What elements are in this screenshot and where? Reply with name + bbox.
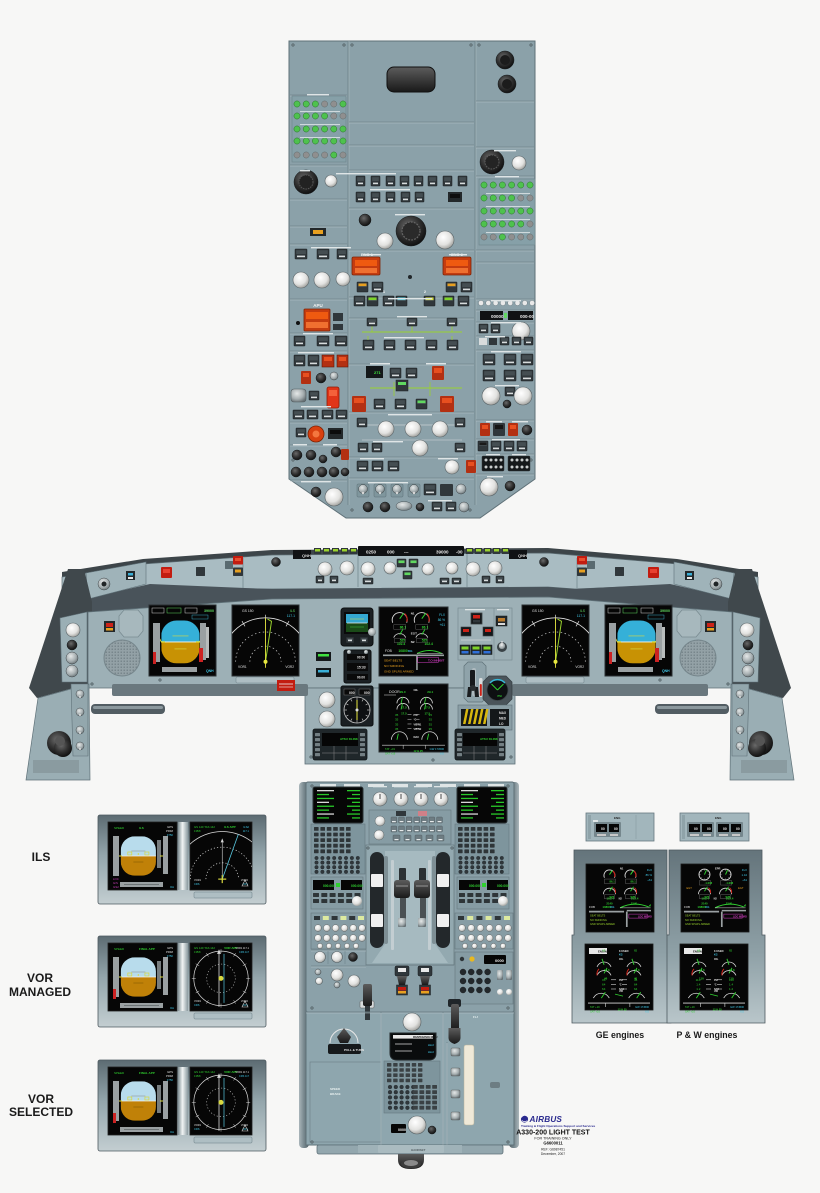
svg-text:GS 140 TAS 142: GS 140 TAS 142 <box>194 825 215 829</box>
svg-text:EGT: EGT <box>411 632 417 636</box>
svg-text:-1.008: -1.008 <box>726 881 734 885</box>
svg-text:DH: DH <box>170 1130 174 1134</box>
svg-text:QNH: QNH <box>518 553 527 558</box>
svg-text:DH: DH <box>170 885 174 889</box>
svg-text:SPEED: SPEED <box>330 1087 341 1091</box>
svg-text:PULL & TURN: PULL & TURN <box>344 1048 364 1052</box>
svg-text:BRAKE: BRAKE <box>330 1092 341 1096</box>
svg-text:N1: N1 <box>620 867 624 871</box>
svg-text:PSI: PSI <box>498 694 502 698</box>
svg-text:110: 110 <box>696 978 701 982</box>
svg-text:NAC: NAC <box>414 735 420 739</box>
svg-text:OIL: OIL <box>714 957 719 961</box>
svg-text:AIRBUS: AIRBUS <box>529 1115 563 1124</box>
svg-text:FOB: FOB <box>385 649 393 653</box>
svg-text:10800: 10800 <box>398 649 408 653</box>
svg-text:LDG MEMO: LDG MEMO <box>638 915 652 918</box>
svg-text:T.O INHIBIT: T.O INHIBIT <box>428 658 445 662</box>
svg-text:A330-200 LIGHT TEST: A330-200 LIGHT TEST <box>516 1130 590 1137</box>
svg-text:°C: °C <box>414 719 417 722</box>
svg-text:36: 36 <box>634 978 638 982</box>
svg-text:12 H 25: 12 H 25 <box>414 749 424 753</box>
svg-text:F.USED: F.USED <box>714 949 724 953</box>
svg-text:00.00: 00.00 <box>357 676 365 680</box>
svg-text:17.5: 17.5 <box>401 711 407 715</box>
svg-text:29.1: 29.1 <box>427 690 433 694</box>
svg-text:000-00: 000-00 <box>520 314 535 319</box>
svg-text:EPR: EPR <box>715 867 720 871</box>
svg-text:SELECTED: SELECTED <box>9 1105 73 1119</box>
svg-text:00: 00 <box>694 827 698 831</box>
svg-text:00:00: 00:00 <box>357 656 365 660</box>
svg-text:F.USED: F.USED <box>619 949 629 953</box>
svg-text:1.2: 1.2 <box>729 987 734 991</box>
svg-text:65: 65 <box>634 949 638 953</box>
svg-text:65: 65 <box>697 949 701 953</box>
svg-text:°C: °C <box>714 985 717 987</box>
svg-text:ENG: ENG <box>715 816 722 820</box>
svg-text:G6600011: G6600011 <box>543 1141 563 1146</box>
svg-text:OIL: OIL <box>619 957 624 961</box>
svg-text:1.4: 1.4 <box>729 983 734 987</box>
svg-text:135/8: 135/8 <box>194 1074 201 1078</box>
svg-text:CRS 117: CRS 117 <box>239 951 250 954</box>
svg-text:QNH: QNH <box>206 669 214 673</box>
svg-text:GS 150: GS 150 <box>532 609 544 613</box>
svg-text:102.4: 102.4 <box>425 642 433 646</box>
svg-text:ILS2: ILS2 <box>113 885 119 889</box>
svg-text:000: 000 <box>387 550 395 555</box>
svg-text:VOR1 117.1: VOR1 117.1 <box>235 1071 249 1074</box>
svg-text:+61: +61 <box>742 878 747 882</box>
svg-text:VIB N2: VIB N2 <box>414 728 422 731</box>
svg-text:000.000: 000.000 <box>497 884 509 888</box>
svg-text:VOR: VOR <box>27 971 53 985</box>
svg-text:SEAT BELTS: SEAT BELTS <box>590 914 606 918</box>
svg-text:GW 174500: GW 174500 <box>430 747 445 751</box>
svg-text:GND SPLRS ARMED: GND SPLRS ARMED <box>590 922 615 926</box>
svg-text:VOR1: VOR1 <box>238 665 247 669</box>
svg-text:35: 35 <box>429 722 433 726</box>
svg-text:35: 35 <box>429 713 433 717</box>
svg-text:135/8: 135/8 <box>194 829 201 833</box>
svg-text:35: 35 <box>429 727 433 731</box>
svg-text:000.000: 000.000 <box>469 884 481 888</box>
svg-text:0000: 0000 <box>495 958 505 963</box>
svg-text:ATSU DLINK: ATSU DLINK <box>480 737 499 741</box>
svg-text:QNH: QNH <box>302 553 311 558</box>
svg-text:GS 140 TAS 142: GS 140 TAS 142 <box>194 946 215 950</box>
svg-text:000.000: 000.000 <box>351 884 363 888</box>
svg-text:MED: MED <box>499 716 507 720</box>
svg-text:102.4: 102.4 <box>397 642 405 646</box>
svg-text:000.000: 000.000 <box>323 884 335 888</box>
svg-text:35: 35 <box>395 713 399 717</box>
svg-text:PSI: PSI <box>714 980 718 982</box>
svg-text:REF: G6987451: REF: G6987451 <box>541 1147 565 1151</box>
svg-text:15:33: 15:33 <box>357 666 366 670</box>
svg-text:3750: 3750 <box>167 1078 174 1082</box>
svg-text:00: 00 <box>736 827 740 831</box>
svg-text:00000: 00000 <box>491 314 504 319</box>
svg-text:°C: °C <box>619 985 622 987</box>
svg-text:GE engines: GE engines <box>596 1030 645 1040</box>
svg-text:ENG: ENG <box>614 816 621 820</box>
svg-text:36: 36 <box>602 978 606 982</box>
svg-text:CRS: CRS <box>194 882 200 886</box>
svg-text:VOR1: VOR1 <box>194 999 202 1003</box>
svg-text:+61: +61 <box>440 623 446 627</box>
svg-text:0250: 0250 <box>366 550 377 555</box>
svg-text:1.4: 1.4 <box>696 983 701 987</box>
svg-text:VIB N1: VIB N1 <box>414 723 422 726</box>
svg-text:+61: +61 <box>647 878 652 882</box>
svg-text:MAINTENANCE MENU: MAINTENANCE MENU <box>413 1036 438 1039</box>
svg-text:P & W engines: P & W engines <box>677 1030 738 1040</box>
svg-text:ILS: ILS <box>580 609 586 613</box>
svg-text:GND SPLRS ARMED: GND SPLRS ARMED <box>384 669 415 673</box>
svg-text:35: 35 <box>395 722 399 726</box>
svg-text:86 %: 86 % <box>438 618 445 622</box>
svg-text:ILS: ILS <box>290 609 296 613</box>
svg-text:EGT: EGT <box>738 886 744 890</box>
svg-text:KG: KG <box>440 752 444 756</box>
svg-text:FINAL APP: FINAL APP <box>139 1071 155 1075</box>
svg-text:VOR1: VOR1 <box>194 1123 202 1127</box>
svg-text:KG: KG <box>610 905 614 909</box>
svg-text:-00: -00 <box>456 550 463 555</box>
svg-text:TAT +19: TAT +19 <box>590 1005 600 1009</box>
svg-text:39000: 39000 <box>436 550 449 555</box>
svg-text:3750: 3750 <box>167 833 174 837</box>
svg-text:NO SMOKING: NO SMOKING <box>590 918 607 922</box>
svg-text:KG: KG <box>714 954 718 957</box>
svg-text:117.1: 117.1 <box>287 614 295 618</box>
svg-text:PSI: PSI <box>414 714 418 717</box>
svg-text:FOB: FOB <box>589 905 595 909</box>
svg-text:64: 64 <box>634 983 638 987</box>
svg-text:FLX: FLX <box>439 613 446 617</box>
svg-text:3750: 3750 <box>167 954 174 958</box>
svg-text:102.4: 102.4 <box>631 896 639 900</box>
svg-text:000: 000 <box>349 691 355 695</box>
svg-text:2140: 2140 <box>631 901 638 905</box>
svg-text:12 H 25: 12 H 25 <box>713 1008 723 1012</box>
svg-text:APU: APU <box>313 303 323 308</box>
svg-text:86.1: 86.1 <box>609 880 615 884</box>
svg-text:December, 2007: December, 2007 <box>541 1152 565 1156</box>
svg-text:86 %: 86 % <box>646 873 653 877</box>
svg-text:VIB: VIB <box>619 990 623 993</box>
svg-text:VOR2: VOR2 <box>575 665 584 669</box>
svg-text:MANAGED: MANAGED <box>9 985 71 999</box>
svg-text:LO: LO <box>499 722 504 726</box>
svg-text:Training & Flight Operations S: Training & Flight Operations Support and… <box>521 1124 596 1128</box>
svg-text:12 H 25: 12 H 25 <box>618 1008 628 1012</box>
svg-text:GS 140 TAS 142: GS 140 TAS 142 <box>194 1070 215 1074</box>
svg-text:VIB: VIB <box>714 990 718 993</box>
svg-text:64: 64 <box>602 987 606 991</box>
svg-text:1.44: 1.44 <box>742 873 748 877</box>
svg-text:35: 35 <box>395 727 399 731</box>
svg-text:65: 65 <box>602 949 606 953</box>
svg-text:1.2: 1.2 <box>696 987 701 991</box>
svg-text:SPEED: SPEED <box>114 1071 125 1075</box>
svg-text:35: 35 <box>429 718 433 722</box>
svg-text:HANDSET: HANDSET <box>411 1148 426 1152</box>
svg-text:KG: KG <box>740 1010 744 1014</box>
svg-text:DOOR: DOOR <box>389 690 400 694</box>
svg-text:OIL: OIL <box>414 688 419 692</box>
svg-text:0000: 0000 <box>398 1128 406 1132</box>
svg-text:117.1: 117.1 <box>577 614 585 618</box>
svg-text:KG: KG <box>619 954 623 957</box>
svg-text:86.1: 86.1 <box>631 880 637 884</box>
svg-text:00: 00 <box>723 827 727 831</box>
svg-text:64: 64 <box>634 987 638 991</box>
svg-text:LDG MEMO: LDG MEMO <box>733 915 747 918</box>
svg-text:65: 65 <box>729 949 733 953</box>
svg-text:KG: KG <box>705 905 709 909</box>
svg-text:-1.008: -1.008 <box>704 881 712 885</box>
svg-text:FINAL APP: FINAL APP <box>139 947 155 951</box>
svg-text:GW 174500: GW 174500 <box>635 1005 649 1009</box>
svg-text:ILS: ILS <box>139 826 144 830</box>
svg-text:DH: DH <box>170 1006 174 1010</box>
svg-text:110: 110 <box>729 978 734 982</box>
svg-text:GND SPLRS ARMED: GND SPLRS ARMED <box>685 922 710 926</box>
svg-text:CRS: CRS <box>194 1003 200 1007</box>
svg-text:N2: N2 <box>411 640 415 644</box>
svg-text:ILS APP: ILS APP <box>224 825 236 829</box>
svg-text:SEAT BELTS: SEAT BELTS <box>384 658 402 662</box>
svg-text:FOB: FOB <box>684 905 690 909</box>
svg-text:PROT: PROT <box>428 1045 435 1047</box>
svg-text:64: 64 <box>602 983 606 987</box>
svg-text:GS 150: GS 150 <box>242 609 254 613</box>
svg-text:FLX: FLX <box>742 868 747 872</box>
svg-text:ILS: ILS <box>32 850 51 864</box>
svg-text:PROT: PROT <box>428 1052 435 1054</box>
svg-text:102.4: 102.4 <box>701 896 709 900</box>
svg-text:000: 000 <box>364 691 370 695</box>
svg-text:FLX: FLX <box>647 868 652 872</box>
svg-text:TAT +19: TAT +19 <box>385 747 395 751</box>
svg-text:117.1: 117.1 <box>243 829 250 833</box>
svg-text:86.1: 86.1 <box>400 626 407 630</box>
svg-text:VOR1: VOR1 <box>194 878 202 882</box>
svg-text:102.4: 102.4 <box>726 896 734 900</box>
svg-text:---: --- <box>404 550 409 555</box>
svg-text:29.0: 29.0 <box>400 690 406 694</box>
svg-text:271: 271 <box>374 370 381 375</box>
svg-text:CRS 117: CRS 117 <box>239 1075 250 1078</box>
svg-text:ATSU DLINK: ATSU DLINK <box>340 737 359 741</box>
svg-text:NO SMOKING: NO SMOKING <box>685 918 702 922</box>
svg-text:PSI: PSI <box>619 980 623 982</box>
svg-text:VOR1: VOR1 <box>528 665 537 669</box>
svg-text:SPEED: SPEED <box>114 947 125 951</box>
svg-text:SAT +16: SAT +16 <box>385 752 396 756</box>
svg-text:39000: 39000 <box>660 609 670 613</box>
svg-text:SAT +16: SAT +16 <box>685 1010 695 1014</box>
svg-text:QNH: QNH <box>662 669 670 673</box>
svg-text:CRS: CRS <box>194 1127 200 1131</box>
svg-text:102.4: 102.4 <box>606 896 614 900</box>
svg-text:ILS2: ILS2 <box>243 825 249 829</box>
svg-text:GW 174500: GW 174500 <box>730 1005 744 1009</box>
svg-text:MAX: MAX <box>499 711 507 715</box>
svg-text:TAT +19: TAT +19 <box>685 1005 695 1009</box>
svg-text:2140: 2140 <box>726 901 733 905</box>
svg-text:VOR2: VOR2 <box>285 665 294 669</box>
svg-text:00: 00 <box>614 827 618 831</box>
svg-text:EGT: EGT <box>687 886 693 890</box>
svg-text:39000: 39000 <box>204 609 214 613</box>
svg-text:00: 00 <box>707 827 711 831</box>
svg-text:135/8: 135/8 <box>194 950 201 954</box>
svg-text:SAT +16: SAT +16 <box>590 1010 600 1014</box>
svg-text:SPEED: SPEED <box>114 826 125 830</box>
svg-text:KG: KG <box>408 649 413 653</box>
svg-text:NO SMOKING: NO SMOKING <box>384 664 405 668</box>
svg-text:86.1: 86.1 <box>422 626 429 630</box>
svg-text:VOR1 117.1: VOR1 117.1 <box>235 947 249 950</box>
svg-text:KG: KG <box>645 1010 649 1014</box>
svg-text:VOR: VOR <box>28 1092 54 1106</box>
svg-text:SEAT BELTS: SEAT BELTS <box>685 914 701 918</box>
svg-text:N1: N1 <box>411 612 415 616</box>
svg-text:35: 35 <box>395 718 399 722</box>
svg-text:00: 00 <box>601 827 605 831</box>
